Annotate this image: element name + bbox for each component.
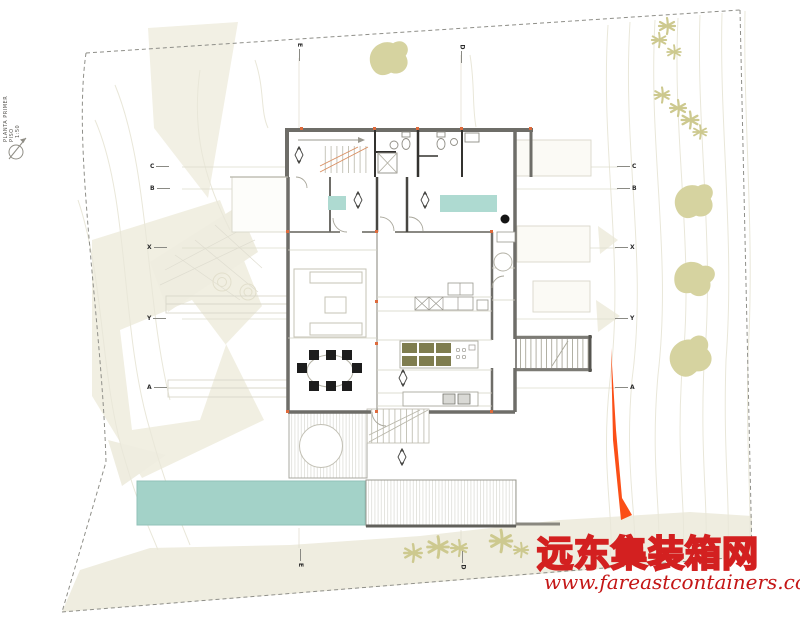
- watermark-site-url: www.fareastcontainers.com: [544, 570, 800, 594]
- grid-label-right-b: B: [615, 186, 637, 192]
- swimming-pool: [137, 481, 365, 525]
- tree-icon: [370, 41, 408, 75]
- grid-label-left-b: B: [150, 186, 172, 192]
- drawing-scale: 1:50: [15, 86, 21, 138]
- tree-icon: [675, 184, 713, 218]
- tree-icon: [670, 256, 717, 301]
- stair-bridge: [514, 335, 592, 372]
- section-cut-marker: [611, 348, 632, 520]
- garden-stairs: [367, 409, 429, 443]
- terrace-deck: [366, 480, 560, 526]
- grid-label-right-c: C: [615, 164, 636, 170]
- grid-label-right-a: A: [613, 385, 635, 391]
- grid-label-left-c: C: [150, 164, 171, 170]
- page-canvas: PLANTA PRIMER PISO 1:50 C B X Y A C B X …: [0, 0, 800, 623]
- grid-label-bottom-e: E: [293, 548, 307, 568]
- tree-icon: [665, 333, 715, 380]
- grid-label-right-x: X: [613, 245, 635, 251]
- drawing-title: PLANTA PRIMER PISO: [3, 86, 15, 142]
- title-block: PLANTA PRIMER PISO 1:50: [3, 86, 21, 142]
- grid-label-left-a: A: [147, 385, 169, 391]
- grid-label-bottom-d: D: [455, 550, 469, 570]
- grid-label-left-y: Y: [147, 316, 168, 322]
- grid-label-top-d: D: [454, 44, 468, 64]
- grid-label-right-y: Y: [613, 316, 634, 322]
- lower-deck: [289, 413, 367, 478]
- column-dot: [501, 215, 510, 224]
- grid-label-top-e: E: [292, 42, 306, 62]
- grid-label-left-x: X: [147, 245, 169, 251]
- deck-circle: [300, 425, 343, 468]
